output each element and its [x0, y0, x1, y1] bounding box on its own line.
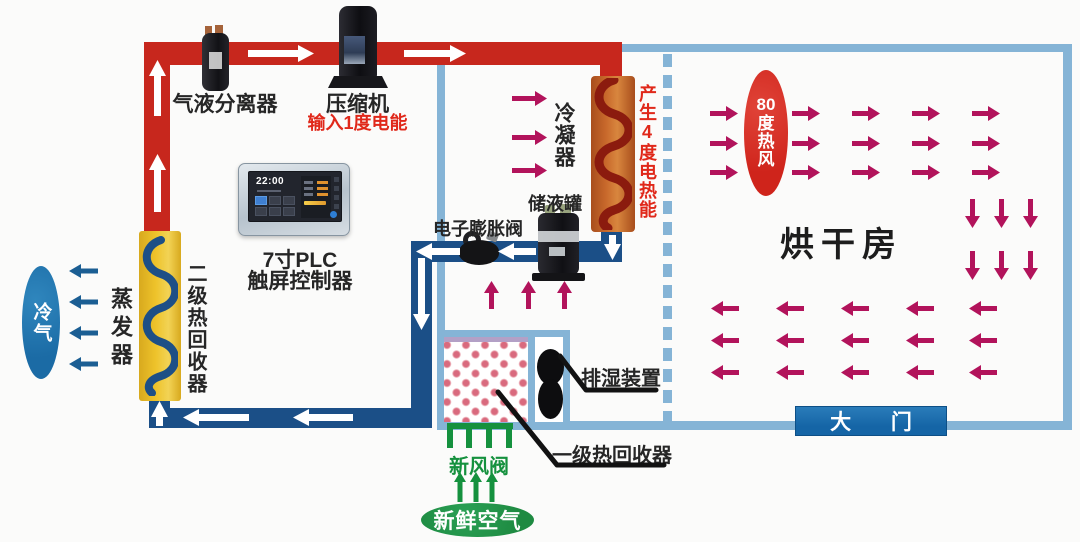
room-air-right-arrow-14: [972, 165, 1000, 180]
room-air-right-arrow-6: [792, 136, 820, 151]
room-air-left-arrow-0: [711, 301, 739, 316]
room-air-right-arrow-5: [710, 136, 738, 151]
room-air-left-arrow-3: [906, 301, 934, 316]
heat-pump-dryer-diagram: 22:00 大 门 冷气 80 度 热 风 新鲜空气 气液分离器: [0, 0, 1080, 542]
refrigerant-white-arrow-9: [293, 409, 353, 426]
flow-arrow-layer: [0, 0, 1080, 542]
recovered-air-up-arrow-0: [484, 281, 499, 309]
room-air-right-arrow-7: [852, 136, 880, 151]
room-air-down-arrow-4: [994, 251, 1009, 280]
recovered-air-up-arrow-1: [521, 281, 536, 309]
fresh-air-in-arrow-0: [454, 472, 466, 502]
room-air-right-arrow-1: [792, 106, 820, 121]
room-air-left-arrow-4: [969, 301, 997, 316]
room-air-left-arrow-1: [776, 301, 804, 316]
refrigerant-white-arrow-4: [604, 235, 621, 260]
refrigerant-white-arrow-1: [404, 45, 466, 62]
room-air-right-arrow-0: [710, 106, 738, 121]
refrigerant-white-arrow-10: [151, 401, 168, 426]
room-air-left-arrow-5: [711, 333, 739, 348]
refrigerant-white-arrow-7: [413, 258, 430, 330]
room-air-left-arrow-8: [906, 333, 934, 348]
room-air-left-arrow-13: [906, 365, 934, 380]
recovered-air-up-arrow-2: [557, 281, 572, 309]
room-air-down-arrow-5: [1023, 251, 1038, 280]
room-air-left-arrow-2: [841, 301, 869, 316]
room-air-right-arrow-3: [912, 106, 940, 121]
refrigerant-white-arrow-0: [248, 45, 314, 62]
room-air-left-arrow-6: [776, 333, 804, 348]
condenser-hot-air-arrow-1: [512, 130, 547, 145]
cold-air-out-arrow-1: [69, 295, 98, 309]
room-air-down-arrow-1: [994, 199, 1009, 228]
refrigerant-white-arrow-2: [149, 60, 166, 116]
refrigerant-white-arrow-6: [498, 243, 536, 260]
cold-air-out-arrow-2: [69, 326, 98, 340]
room-air-right-arrow-10: [710, 165, 738, 180]
room-air-left-arrow-9: [969, 333, 997, 348]
room-air-down-arrow-0: [965, 199, 980, 228]
cold-air-out-arrow-0: [69, 264, 98, 278]
room-air-left-arrow-12: [841, 365, 869, 380]
room-air-left-arrow-11: [776, 365, 804, 380]
room-air-right-arrow-4: [972, 106, 1000, 121]
condenser-hot-air-arrow-0: [512, 91, 547, 106]
room-air-down-arrow-3: [965, 251, 980, 280]
cold-air-out-arrow-3: [69, 357, 98, 371]
refrigerant-white-arrow-8: [183, 409, 249, 426]
fresh-air-in-arrow-2: [486, 472, 498, 502]
fresh-air-in-arrow-1: [470, 472, 482, 502]
room-air-right-arrow-9: [972, 136, 1000, 151]
condenser-hot-air-arrow-2: [512, 163, 547, 178]
room-air-right-arrow-13: [912, 165, 940, 180]
room-air-down-arrow-2: [1023, 199, 1038, 228]
room-air-right-arrow-11: [792, 165, 820, 180]
room-air-right-arrow-2: [852, 106, 880, 121]
room-air-right-arrow-8: [912, 136, 940, 151]
room-air-left-arrow-7: [841, 333, 869, 348]
refrigerant-white-arrow-3: [149, 154, 166, 212]
room-air-left-arrow-14: [969, 365, 997, 380]
room-air-right-arrow-12: [852, 165, 880, 180]
room-air-left-arrow-10: [711, 365, 739, 380]
